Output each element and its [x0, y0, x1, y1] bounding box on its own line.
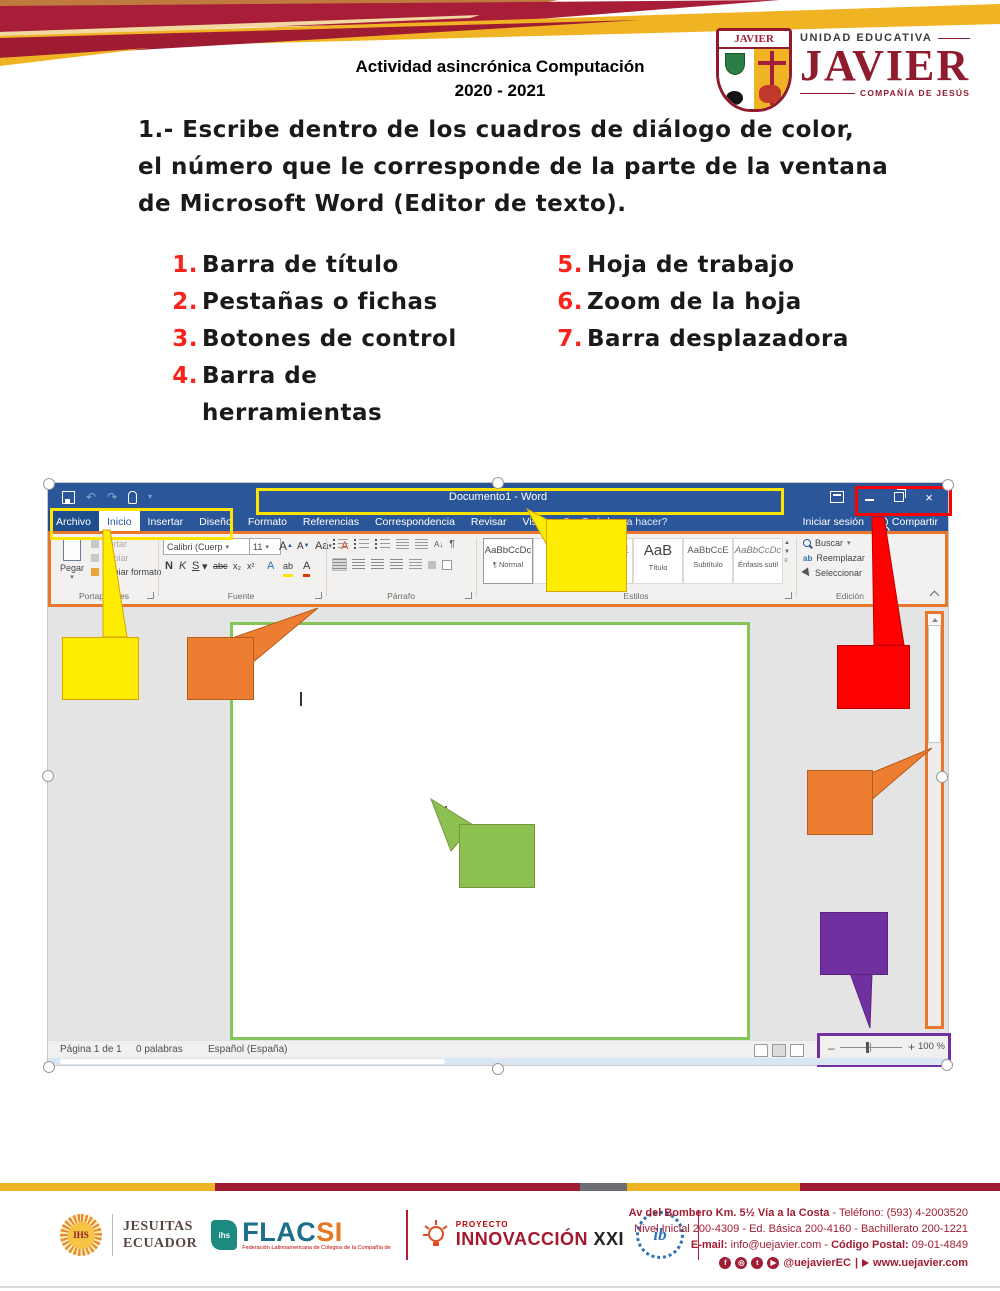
clipboard-dialog-launcher-icon[interactable] — [147, 592, 154, 599]
social-row: f ◎ t ▶ @uejavierEC | www.uejavier.com — [598, 1255, 968, 1271]
font-size-input[interactable]: 11▾ — [249, 538, 281, 555]
vertical-scrollbar[interactable] — [925, 611, 944, 1029]
font-group-label: Fuente — [196, 591, 286, 601]
website-link[interactable]: www.uejavier.com — [873, 1255, 968, 1271]
list-item: 4.Barra de herramientas — [168, 358, 458, 432]
page-dot-mark — [445, 806, 447, 808]
selection-handle[interactable] — [492, 477, 504, 489]
increase-indent-icon[interactable] — [415, 539, 428, 550]
word-count-status[interactable]: 0 palabras — [136, 1044, 183, 1055]
subscript-button[interactable]: x₂ — [233, 558, 241, 574]
answer-box-orange-toolbar[interactable] — [187, 637, 254, 700]
style-enfasis-sutil[interactable]: AaBbCcDc Énfasis sutil — [733, 538, 783, 584]
cut-button[interactable]: Cortar — [91, 539, 162, 549]
worksheet-page: JAVIER UNIDAD EDUCATIVA JAVIER COMPAÑÍA … — [0, 0, 1000, 1291]
search-icon — [803, 539, 811, 547]
list-item: 5.Hoja de trabajo — [553, 247, 873, 284]
parts-list-left: 1.Barra de título 2.Pestañas o fichas 3.… — [168, 247, 458, 432]
font-color-button[interactable]: A — [303, 558, 310, 577]
cut-icon — [91, 540, 99, 548]
selection-handle[interactable] — [941, 1059, 953, 1071]
language-status[interactable]: Español (España) — [208, 1044, 288, 1055]
share-person-icon — [878, 517, 888, 527]
activity-title: Actividad asincrónica Computación — [0, 55, 1000, 79]
contact-levels: Nivel Inicial 200-4309 - Ed. Básica 200-… — [598, 1221, 968, 1237]
style-subtitulo[interactable]: AaBbCcE Subtítulo — [683, 538, 733, 584]
youtube-icon[interactable]: ▶ — [767, 1257, 779, 1269]
bottom-rule — [0, 1286, 1000, 1288]
save-icon[interactable] — [62, 491, 75, 504]
style-titulo[interactable]: AaB Título — [633, 538, 683, 584]
lightbulb-rays-icon — [422, 1218, 450, 1252]
decrease-indent-icon[interactable] — [396, 539, 409, 550]
zoom-out-button[interactable]: – — [828, 1041, 835, 1055]
zoom-slider-track[interactable] — [840, 1047, 902, 1048]
flacsi-logo: ihs FLACSI Federación Latinoamericana de… — [211, 1219, 392, 1251]
clipboard-icon — [63, 539, 81, 561]
strikethrough-button[interactable]: abc — [213, 558, 228, 574]
highlight-window-controls-outline — [855, 486, 952, 516]
contact-address: Av del Bombero Km. 5½ Vía a la Costa - T… — [598, 1205, 968, 1221]
font-name-input[interactable]: Calibri (Cuerp▾ — [163, 538, 253, 555]
answer-box-purple-zoom[interactable] — [820, 912, 888, 975]
instagram-icon[interactable]: ◎ — [735, 1257, 747, 1269]
crest-banner: JAVIER — [719, 31, 789, 49]
find-button[interactable]: Buscar▾ — [803, 538, 865, 548]
selection-handle[interactable] — [942, 479, 954, 491]
ribbon-display-options-icon[interactable] — [830, 491, 844, 503]
paragraph-dialog-launcher-icon[interactable] — [465, 592, 472, 599]
bold-button[interactable]: N — [165, 558, 173, 574]
selection-handle[interactable] — [43, 478, 55, 490]
replace-icon: ab — [803, 554, 812, 563]
task-line: de Microsoft Word (Editor de texto). — [138, 186, 928, 223]
borders-icon[interactable] — [442, 560, 452, 570]
school-year: 2020 - 2021 — [0, 79, 1000, 103]
twitter-icon[interactable]: t — [751, 1257, 763, 1269]
undo-icon[interactable]: ↶ — [86, 491, 96, 503]
collapse-ribbon-icon[interactable] — [930, 591, 940, 601]
selection-handle[interactable] — [42, 770, 54, 782]
numbering-icon[interactable] — [354, 539, 369, 550]
grow-font-button[interactable]: A▲ — [279, 538, 293, 554]
format-painter-button[interactable]: Copiar formato — [91, 567, 162, 577]
word-window-screenshot: ↶ ↷ ▾ Documento1 - Word × Archivo Inicio… — [48, 483, 948, 1065]
activity-title-block: Actividad asincrónica Computación 2020 -… — [0, 55, 1000, 103]
copy-icon — [91, 554, 99, 562]
list-item: 7.Barra desplazadora — [553, 321, 873, 358]
social-handle[interactable]: @uejavierEC — [783, 1255, 851, 1271]
quick-access-toolbar: ↶ ↷ ▾ — [62, 491, 152, 504]
copy-button[interactable]: Copiar — [91, 553, 162, 563]
answer-box-orange-scrollbar[interactable] — [807, 770, 873, 835]
highlight-title-bar-outline — [256, 488, 784, 515]
line-spacing-icon[interactable] — [409, 559, 422, 570]
text-effects-icon[interactable]: A — [267, 558, 274, 574]
qat-dropdown-icon[interactable]: ▾ — [148, 491, 152, 503]
select-button[interactable]: Seleccionar — [803, 568, 865, 578]
paste-button[interactable]: Pegar ▾ — [56, 539, 88, 587]
parts-list-right: 5.Hoja de trabajo 6.Zoom de la hoja 7.Ba… — [553, 247, 873, 358]
paragraph-group-label: Párrafo — [356, 591, 446, 601]
answer-box-yellow-tabs[interactable] — [62, 637, 139, 700]
flacsi-tagline: Federación Latinoamericana de Colegios d… — [242, 1245, 392, 1251]
scrollbar-thumb[interactable] — [928, 625, 941, 743]
align-right-icon[interactable] — [371, 559, 384, 570]
read-mode-icon[interactable] — [754, 1044, 768, 1057]
website-arrow-icon — [862, 1259, 869, 1267]
align-center-icon[interactable] — [352, 559, 365, 570]
answer-box-red-controls[interactable] — [837, 645, 910, 709]
proyecto-innovaccion-logo: PROYECTO INNOVACCIÓN XXI — [422, 1218, 624, 1252]
shading-icon[interactable] — [428, 561, 436, 569]
share-button[interactable]: Compartir — [878, 516, 938, 528]
task-instructions: 1.- Escribe dentro de los cuadros de diá… — [138, 112, 928, 223]
zoom-slider-thumb[interactable] — [866, 1042, 869, 1053]
paste-dropdown-icon: ▾ — [56, 573, 88, 581]
zoom-in-button[interactable]: + — [908, 1040, 915, 1054]
zoom-percentage[interactable]: 100 % — [918, 1041, 945, 1052]
style-normal[interactable]: AaBbCcDc ¶ Normal — [483, 538, 533, 584]
answer-box-green-worksheet[interactable] — [459, 824, 535, 888]
superscript-button[interactable]: x² — [247, 558, 255, 574]
clipboard-group-label: Portapapeles — [59, 591, 149, 601]
align-left-icon[interactable] — [333, 559, 346, 570]
styles-scroll-down-icon[interactable]: ▼ — [784, 549, 790, 555]
page-count-status[interactable]: Página 1 de 1 — [60, 1044, 122, 1055]
footer-stripe — [0, 1183, 1000, 1191]
select-cursor-icon — [801, 567, 812, 578]
underline-button[interactable]: S — [192, 558, 199, 574]
task-line: 1.- Escribe dentro de los cuadros de diá… — [138, 112, 928, 149]
highlight-tabs-outline — [50, 508, 233, 540]
web-layout-icon[interactable] — [790, 1044, 804, 1057]
editing-group-label: Edición — [805, 591, 895, 601]
scroll-up-icon[interactable] — [928, 614, 941, 625]
jesuitas-ecuador-logo: JESUITAS ECUADOR — [123, 1218, 197, 1252]
ribbon-toolbar: Pegar ▾ Cortar Copiar Copiar formato Por… — [48, 531, 948, 607]
styles-group-label: Estilos — [591, 591, 681, 601]
underline-dropdown-icon[interactable]: ▾ — [202, 558, 208, 574]
bullets-icon[interactable] — [333, 539, 348, 550]
styles-scroll-up-icon[interactable]: ▲ — [784, 540, 790, 546]
touch-mode-icon[interactable] — [128, 491, 137, 504]
list-item: 3.Botones de control — [168, 321, 458, 358]
answer-box-yellow-title[interactable] — [546, 519, 627, 592]
flacsi-icon: ihs — [211, 1220, 237, 1250]
facebook-icon[interactable]: f — [719, 1257, 731, 1269]
styles-more-icon[interactable]: ≡ — [784, 558, 790, 564]
pilcrow-icon[interactable]: ¶ — [449, 539, 454, 550]
justify-icon[interactable] — [390, 559, 403, 570]
selection-handle[interactable] — [936, 771, 948, 783]
selection-handle[interactable] — [492, 1063, 504, 1075]
font-dialog-launcher-icon[interactable] — [315, 592, 322, 599]
replace-button[interactable]: abReemplazar — [803, 553, 865, 563]
footer-contact: Av del Bombero Km. 5½ Vía a la Costa - T… — [598, 1205, 968, 1271]
contact-email: E-mail: info@uejavier.com - Código Posta… — [598, 1237, 968, 1253]
list-item: 2.Pestañas o fichas — [168, 284, 458, 321]
print-layout-icon[interactable] — [772, 1044, 786, 1057]
redo-icon[interactable]: ↷ — [107, 491, 117, 503]
shrink-font-button[interactable]: A▼ — [297, 538, 310, 554]
text-cursor — [300, 692, 302, 706]
sort-icon[interactable]: A↓ — [434, 540, 443, 549]
selection-handle[interactable] — [43, 1061, 55, 1073]
sign-in-link[interactable]: Iniciar sesión — [803, 516, 864, 528]
list-item: 6.Zoom de la hoja — [553, 284, 873, 321]
jesuits-ihs-emblem: IHS — [60, 1214, 102, 1256]
task-line: el número que le corresponde de la parte… — [138, 149, 928, 186]
highlight-color-button[interactable]: ab — [283, 558, 293, 577]
horizontal-scrollbar-thumb[interactable] — [60, 1059, 445, 1064]
format-painter-icon — [91, 568, 99, 576]
status-bar: Página 1 de 1 0 palabras Español (España… — [48, 1040, 948, 1059]
italic-button[interactable]: K — [179, 558, 186, 574]
change-case-button[interactable]: Aa▾ — [315, 538, 332, 554]
styles-dialog-launcher-icon[interactable] — [785, 592, 792, 599]
list-item: 1.Barra de título — [168, 247, 458, 284]
multilevel-list-icon[interactable] — [375, 539, 390, 550]
